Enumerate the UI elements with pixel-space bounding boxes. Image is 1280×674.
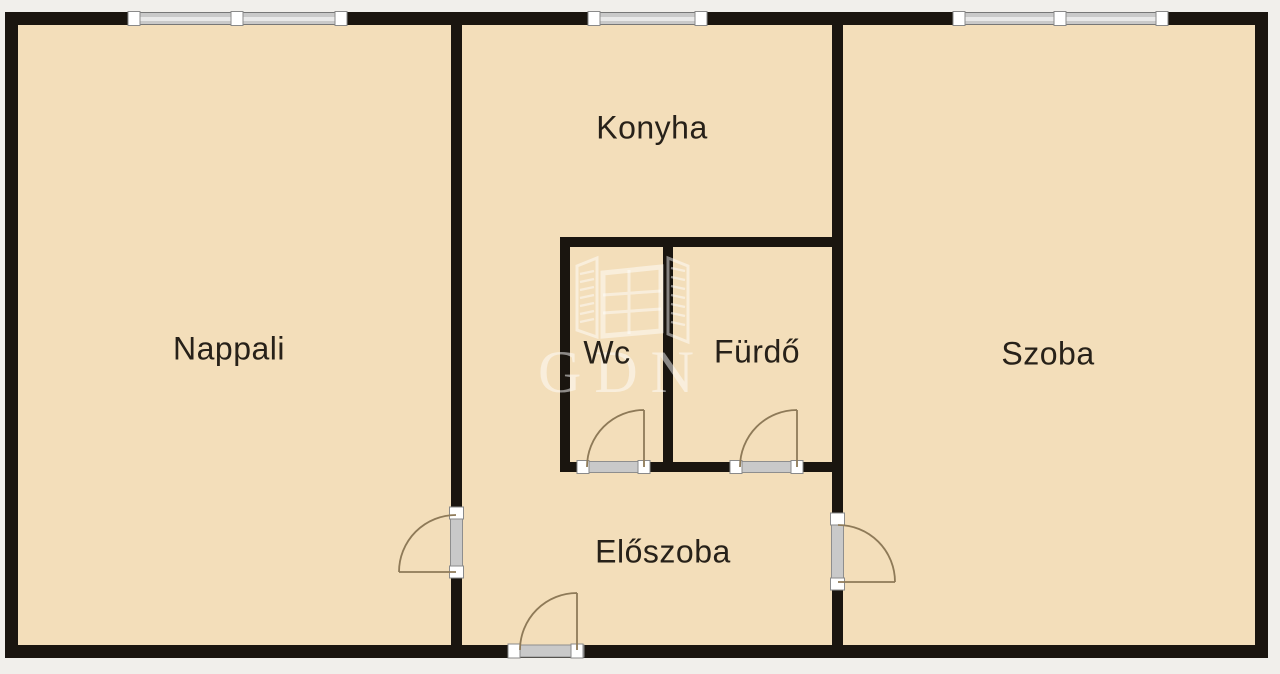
windows (128, 12, 1168, 26)
room-label-szoba: Szoba (1001, 336, 1094, 373)
window-szoba (953, 12, 1168, 26)
room-label-eloszoba: Előszoba (595, 534, 731, 571)
floor-plan: GDN Nappali Konyha Wc Fürdő Szoba Előszo… (0, 0, 1280, 674)
room-label-nappali: Nappali (173, 331, 285, 368)
room-label-konyha: Konyha (596, 110, 708, 147)
room-label-wc: Wc (583, 335, 630, 372)
room-label-furdo: Fürdő (714, 334, 800, 371)
window-konyha (588, 12, 707, 26)
opening-nappali (450, 507, 464, 578)
window-nappali (128, 12, 347, 26)
